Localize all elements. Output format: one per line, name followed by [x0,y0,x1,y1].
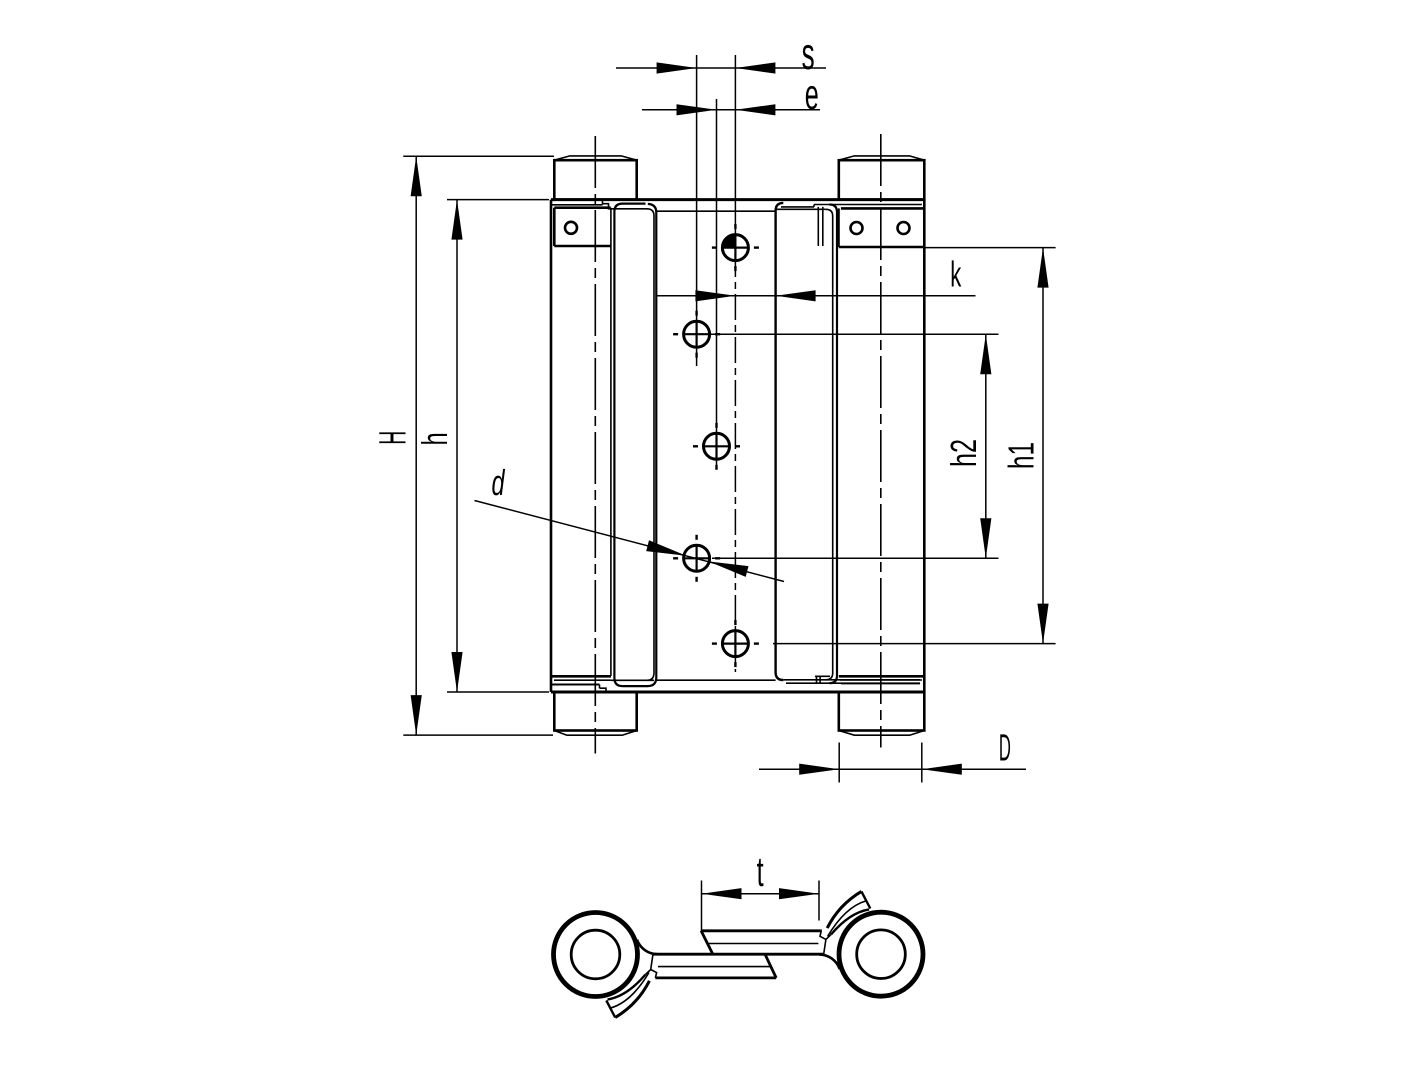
svg-text:e: e [805,71,819,119]
svg-text:k: k [950,253,962,294]
svg-text:d: d [491,462,505,503]
svg-text:H: H [373,431,415,445]
svg-text:h1: h1 [1001,442,1042,469]
svg-text:D: D [999,727,1011,769]
svg-text:t: t [757,848,764,895]
svg-text:h: h [414,432,455,445]
svg-text:h2: h2 [943,439,984,467]
